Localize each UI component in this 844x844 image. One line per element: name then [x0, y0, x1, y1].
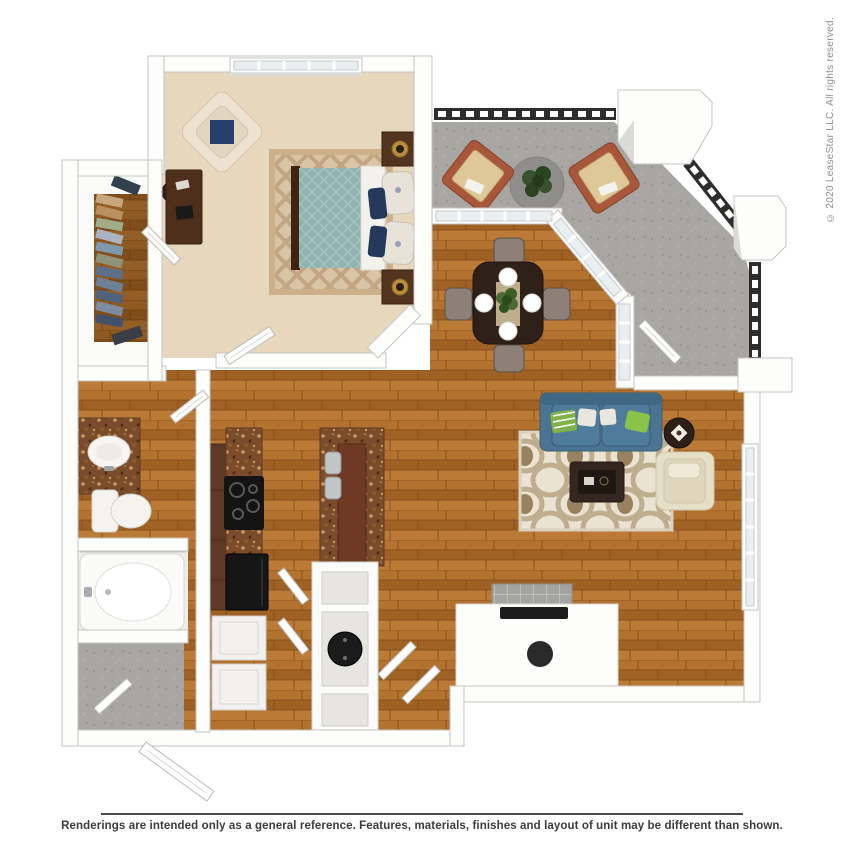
- wall: [450, 686, 760, 702]
- floor-plan-page: © 2020 LeaseStar LLC. All rights reserve…: [0, 0, 844, 844]
- wall: [62, 630, 188, 643]
- dining-chair: [494, 238, 524, 265]
- water-heater-valve: [343, 638, 347, 642]
- place-setting: [499, 268, 517, 286]
- copyright-watermark: © 2020 LeaseStar LLC. All rights reserve…: [825, 8, 841, 223]
- lamp-shade-top: [396, 145, 404, 153]
- sofa-backrest: [540, 393, 662, 405]
- fireplace-ring: [527, 641, 553, 667]
- island-sink-basin: [325, 477, 341, 499]
- bedroom-window: [230, 58, 362, 76]
- bed-pillow: [382, 171, 416, 215]
- wall: [196, 370, 210, 732]
- disclaimer-text: Renderings are intended only as a genera…: [0, 820, 844, 832]
- place-setting: [475, 294, 493, 312]
- desk-laptop: [175, 205, 193, 220]
- white-pillow: [599, 408, 616, 425]
- sink-basin: [96, 443, 122, 461]
- water-heater: [328, 632, 362, 666]
- candle-center: [677, 431, 682, 436]
- pillow-medallion: [395, 241, 401, 247]
- dining-chair: [543, 288, 570, 320]
- place-setting: [499, 322, 517, 340]
- pantry-opening: [322, 572, 368, 604]
- wall: [62, 538, 188, 551]
- island-sink-basin: [325, 452, 341, 474]
- footer-divider: [101, 813, 743, 815]
- toilet-bowl: [111, 494, 151, 528]
- bed-duvet-quilting: [299, 168, 363, 268]
- floor-plan-rendering: [0, 0, 844, 844]
- tub-faucet: [84, 587, 92, 597]
- lumbar-pillow: [668, 463, 700, 478]
- wall: [148, 160, 162, 381]
- footer: Renderings are intended only as a genera…: [0, 813, 844, 832]
- lamp-shade-top: [396, 283, 404, 291]
- wall: [414, 56, 432, 324]
- wall: [634, 376, 746, 390]
- cream-accent-chair: [656, 452, 714, 510]
- tray-book: [584, 477, 594, 485]
- navy-pillow: [210, 120, 234, 144]
- patio-column: [734, 196, 786, 260]
- living-room-window: [742, 444, 758, 610]
- wall: [450, 686, 464, 746]
- coffee-table-tray: [578, 470, 616, 494]
- dining-chair: [494, 345, 524, 372]
- pillow-medallion: [395, 187, 401, 193]
- pantry-opening: [322, 694, 368, 726]
- wall: [148, 56, 164, 174]
- window-sill: [230, 73, 362, 76]
- place-setting: [523, 294, 541, 312]
- patio-column: [738, 358, 792, 392]
- bed-accent-pillow: [367, 225, 387, 258]
- water-heater-valve: [343, 656, 347, 660]
- white-pillow: [577, 408, 597, 427]
- dining-bay-window: [436, 211, 552, 221]
- tv: [500, 607, 568, 619]
- bed-footboard: [291, 166, 300, 270]
- dining-chair: [445, 288, 472, 320]
- bed-accent-pillow: [367, 187, 387, 220]
- island-breakfast-bar: [338, 444, 366, 574]
- wall: [62, 730, 464, 746]
- blue-sofa: [540, 393, 662, 451]
- sink-faucet: [104, 466, 114, 471]
- tub-drain: [105, 589, 111, 595]
- wall: [62, 160, 78, 746]
- dining-side-window: [619, 304, 630, 380]
